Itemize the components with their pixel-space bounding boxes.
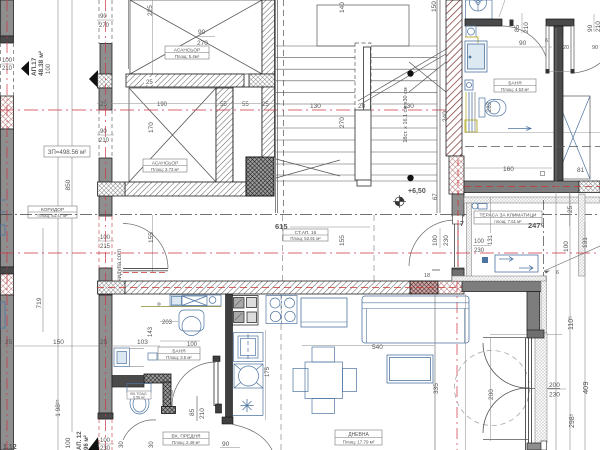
svg-text:90: 90 [587, 24, 594, 32]
svg-text:130: 130 [310, 103, 321, 110]
svg-text:90: 90 [169, 390, 175, 396]
svg-text:+6,50: +6,50 [408, 188, 426, 195]
svg-text:200: 200 [549, 382, 560, 389]
svg-text:100: 100 [65, 437, 72, 448]
svg-text:100: 100 [100, 235, 111, 241]
svg-text:100: 100 [563, 241, 570, 252]
svg-text:100: 100 [187, 342, 198, 348]
svg-text:25: 25 [146, 80, 153, 86]
svg-text:247⁵: 247⁵ [528, 221, 545, 230]
svg-text:96 м²: 96 м² [83, 435, 90, 450]
svg-text:100: 100 [46, 63, 52, 74]
svg-text:85: 85 [514, 24, 521, 32]
svg-text:230: 230 [443, 235, 450, 246]
svg-text:АП.17: АП.17 [31, 57, 38, 76]
svg-text:103: 103 [137, 339, 148, 346]
svg-text:25: 25 [100, 339, 108, 346]
svg-text:270: 270 [339, 117, 346, 128]
svg-text:20: 20 [563, 45, 569, 51]
svg-text:25: 25 [567, 205, 574, 213]
svg-text:25: 25 [5, 339, 13, 346]
svg-text:203: 203 [162, 320, 173, 326]
svg-text:210: 210 [2, 66, 13, 72]
svg-text:100: 100 [474, 239, 485, 245]
svg-text:20: 20 [358, 103, 366, 110]
svg-text:100: 100 [2, 58, 13, 64]
svg-text:230: 230 [100, 446, 111, 450]
svg-text:81: 81 [577, 167, 585, 174]
svg-text:55: 55 [220, 102, 227, 108]
svg-text:90: 90 [100, 129, 107, 135]
svg-text:1 98¹⁵: 1 98¹⁵ [55, 399, 62, 417]
svg-text:100: 100 [432, 235, 439, 246]
svg-text:140: 140 [339, 2, 346, 13]
svg-text:270: 270 [197, 40, 208, 47]
svg-text:Площ: 3.5 м²: Площ: 3.5 м² [166, 355, 192, 360]
svg-text:210: 210 [523, 22, 530, 33]
svg-text:90: 90 [222, 441, 230, 448]
svg-text:210: 210 [199, 408, 206, 419]
svg-text:110⁵: 110⁵ [568, 316, 575, 330]
svg-text:АСАНСЬОР: АСАНСЬОР [174, 48, 201, 54]
svg-text:48.38 м²: 48.38 м² [38, 50, 45, 76]
svg-text:131: 131 [488, 234, 494, 245]
svg-text:Площ: 4.53 м²: Площ: 4.53 м² [501, 87, 529, 92]
svg-text:130: 130 [403, 103, 414, 110]
svg-text:ДНЕВНА: ДНЕВНА [348, 432, 369, 438]
svg-text:ТЕРАСА ЗА КЛИМАТИЦИ: ТЕРАСА ЗА КЛИМАТИЦИ [479, 213, 537, 219]
svg-text:90: 90 [519, 40, 527, 47]
svg-text:215: 215 [100, 244, 111, 250]
svg-text:Площ: 3.73 м²: Площ: 3.73 м² [151, 167, 179, 172]
svg-text:1,12: 1,12 [3, 444, 17, 450]
svg-text:170: 170 [148, 122, 155, 133]
svg-text:150: 150 [431, 1, 438, 12]
svg-text:90: 90 [198, 29, 206, 36]
svg-text:6: 6 [556, 270, 559, 276]
svg-text:200: 200 [488, 389, 495, 400]
svg-text:18ст. х 16.1 см.х30 см: 18ст. х 16.1 см.х30 см [403, 87, 409, 143]
svg-text:540: 540 [372, 344, 383, 351]
svg-text:ЗП=498.56 м²: ЗП=498.56 м² [48, 149, 87, 156]
svg-text:25: 25 [100, 102, 107, 108]
svg-text:18: 18 [424, 273, 430, 279]
svg-text:210: 210 [99, 138, 110, 144]
svg-text:АП. 12: АП. 12 [77, 431, 83, 450]
svg-text:335: 335 [433, 383, 440, 394]
svg-text:210: 210 [595, 21, 600, 32]
svg-text:719: 719 [36, 297, 43, 308]
svg-text:0.56 м²: 0.56 м² [133, 396, 145, 400]
svg-text:155: 155 [148, 232, 155, 243]
svg-text:Площ: 51.47 м²: Площ: 51.47 м² [37, 213, 68, 218]
svg-text:12: 12 [557, 38, 563, 44]
svg-text:850: 850 [65, 179, 72, 190]
svg-text:298⁵: 298⁵ [569, 413, 576, 428]
svg-text:БАНЯ: БАНЯ [172, 349, 186, 355]
svg-text:100: 100 [100, 438, 111, 444]
svg-text:6: 6 [545, 38, 548, 44]
svg-text:90: 90 [592, 45, 598, 51]
svg-text:БАНЯ: БАНЯ [508, 81, 522, 87]
svg-text:131: 131 [582, 237, 589, 248]
svg-text:55: 55 [242, 102, 249, 108]
svg-text:анидупа.com: анидупа.com [117, 249, 123, 285]
svg-text:30: 30 [119, 441, 125, 448]
svg-text:25: 25 [262, 102, 269, 108]
svg-text:90: 90 [100, 14, 107, 20]
svg-text:7: 7 [460, 221, 464, 228]
svg-text:150: 150 [53, 339, 64, 346]
svg-text:67: 67 [433, 193, 439, 200]
svg-text:409: 409 [581, 381, 590, 394]
svg-text:ВХ. ПРЕДНЯ: ВХ. ПРЕДНЯ [172, 434, 201, 440]
svg-text:190: 190 [157, 102, 168, 108]
svg-text:175: 175 [265, 366, 271, 377]
svg-text:площ: 7.61 м²: площ: 7.61 м² [494, 219, 522, 224]
svg-text:Площ: 5.4м²: Площ: 5.4м² [175, 54, 200, 59]
svg-text:160: 160 [503, 166, 514, 173]
svg-text:225: 225 [147, 5, 154, 16]
svg-text:85: 85 [189, 408, 196, 416]
svg-text:Площ: 52.91 м²: Площ: 52.91 м² [290, 236, 321, 241]
svg-text:Площ: 17.79 м²: Площ: 17.79 м² [343, 440, 375, 445]
svg-text:143: 143 [148, 326, 154, 337]
svg-text:270: 270 [99, 23, 110, 29]
svg-text:АСАНСЬОР: АСАНСЬОР [152, 161, 179, 167]
svg-text:155: 155 [339, 235, 346, 246]
svg-text:Площ: 2.46 м²: Площ: 2.46 м² [172, 440, 200, 445]
svg-text:230: 230 [549, 392, 560, 399]
svg-text:30: 30 [149, 441, 155, 448]
